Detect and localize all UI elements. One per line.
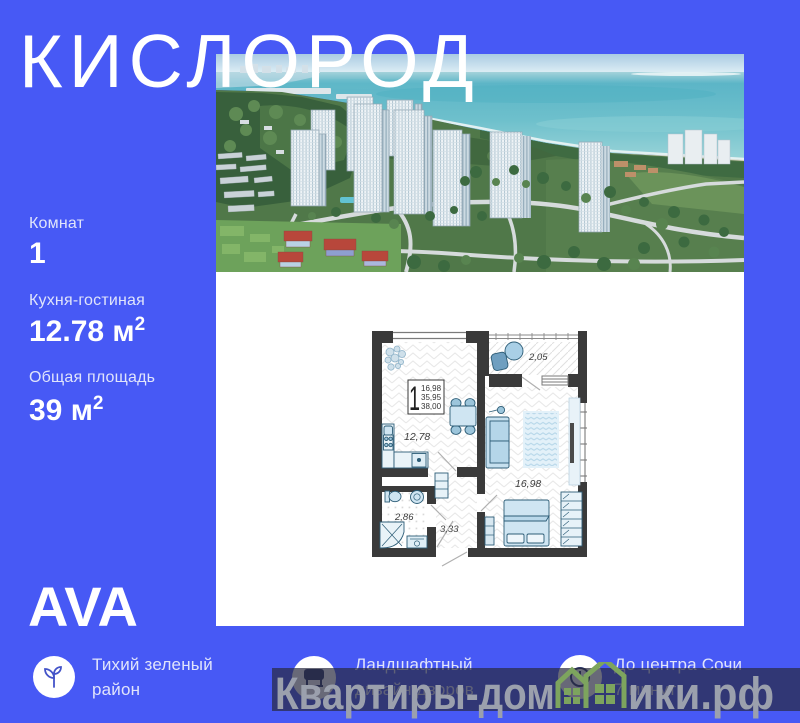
- svg-text:1: 1: [409, 380, 420, 418]
- svg-text:2,86: 2,86: [394, 512, 414, 523]
- svg-text:12,78: 12,78: [404, 431, 430, 443]
- svg-text:35,95: 35,95: [421, 393, 442, 402]
- svg-text:38,00: 38,00: [421, 402, 442, 411]
- svg-text:3,33: 3,33: [440, 524, 459, 535]
- svg-text:2,05: 2,05: [528, 352, 548, 363]
- svg-text:16,98: 16,98: [421, 384, 442, 393]
- svg-text:16,98: 16,98: [515, 478, 541, 490]
